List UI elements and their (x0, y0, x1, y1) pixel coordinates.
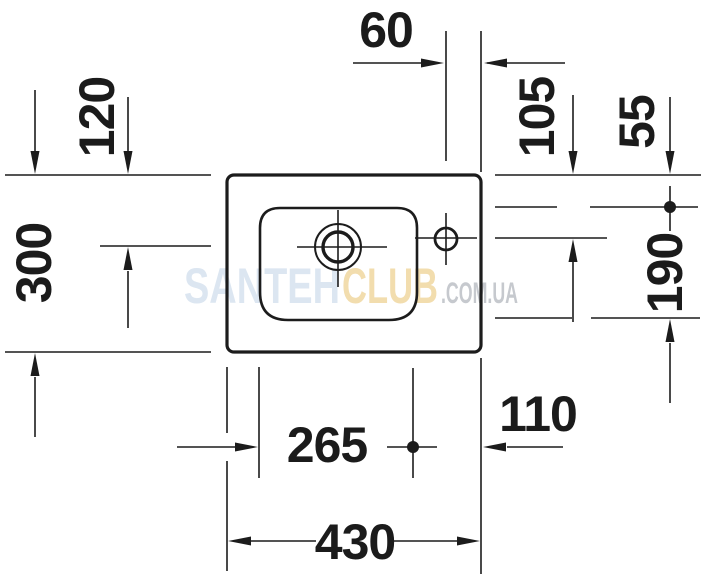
watermark-brand-right: CLUB (342, 258, 438, 314)
washbasin-dimension-drawing: SANTEH CLUB .COM.UA (0, 0, 705, 576)
dim-label-430: 430 (315, 514, 395, 570)
arrowhead-down-icon (569, 151, 578, 174)
arrowhead-right-icon (421, 59, 444, 68)
arrowhead-right-icon (457, 537, 480, 546)
dimension-110: 110 (483, 386, 577, 452)
dim-label-300: 300 (6, 223, 62, 303)
arrowhead-down-icon (31, 151, 40, 174)
arrowhead-left-icon (483, 443, 506, 452)
dim-label-55: 55 (609, 95, 665, 149)
chain-dot-icon (664, 201, 676, 213)
arrowhead-left-icon (228, 537, 251, 546)
arrowhead-up-icon (569, 239, 578, 262)
dimension-430: 430 (228, 514, 480, 570)
dim-label-265: 265 (287, 417, 368, 473)
arrowhead-right-icon (235, 443, 258, 452)
arrowhead-up-icon (31, 353, 40, 376)
dim-label-105: 105 (509, 77, 565, 158)
dim-label-120: 120 (69, 77, 125, 157)
chain-dot-icon (407, 441, 419, 453)
dimension-120: 120 (69, 77, 133, 328)
dimension-60: 60 (353, 2, 565, 68)
dimension-300: 300 (6, 90, 62, 437)
dimension-265: 265 (177, 417, 437, 473)
dim-label-110: 110 (499, 386, 577, 442)
dimension-105: 105 (509, 77, 578, 322)
dimension-55: 55 (609, 95, 676, 231)
arrowhead-up-icon (666, 319, 675, 342)
arrowhead-up-icon (124, 247, 133, 270)
arrowhead-down-icon (666, 151, 675, 174)
dim-label-190: 190 (637, 233, 693, 313)
technical-drawing-canvas: SANTEH CLUB .COM.UA (0, 0, 705, 576)
arrowhead-left-icon (484, 59, 507, 68)
dim-label-60: 60 (359, 2, 413, 58)
